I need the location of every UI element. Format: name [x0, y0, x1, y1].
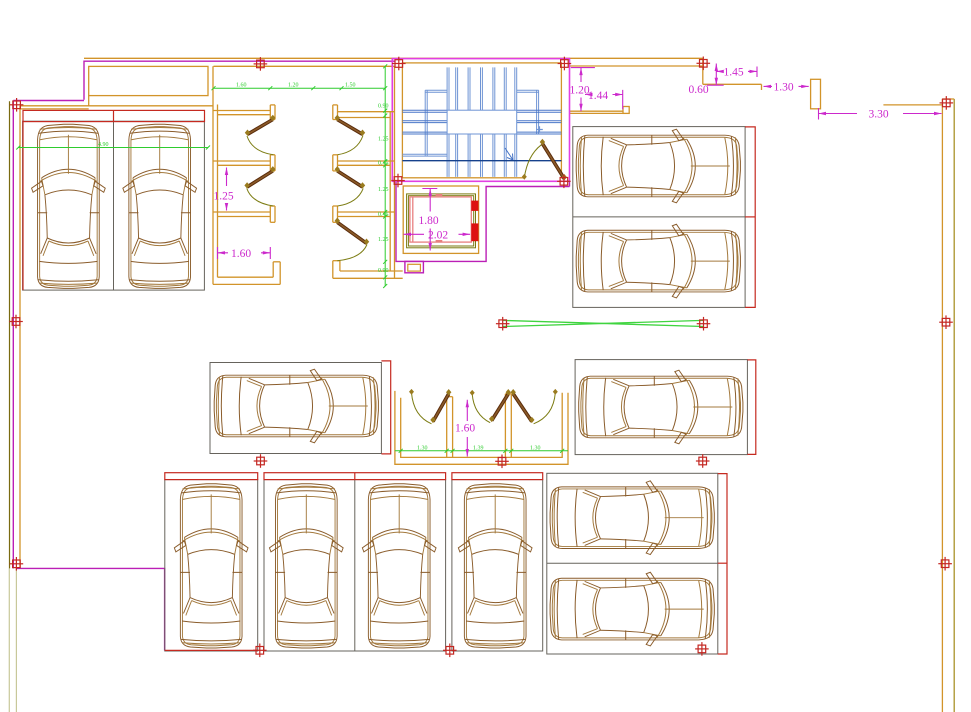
svg-text:0.45: 0.45	[378, 212, 389, 218]
svg-text:1.30: 1.30	[530, 445, 541, 451]
svg-text:1.45: 1.45	[724, 67, 744, 79]
svg-text:1.25: 1.25	[378, 137, 389, 143]
svg-text:1.30: 1.30	[774, 82, 794, 94]
svg-text:1.25: 1.25	[378, 187, 389, 193]
svg-text:1.60: 1.60	[236, 83, 247, 89]
svg-text:0.45: 0.45	[378, 161, 389, 167]
svg-text:1.60: 1.60	[455, 423, 475, 435]
svg-text:0.90: 0.90	[378, 268, 389, 274]
svg-text:0.60: 0.60	[689, 84, 709, 96]
svg-text:1.30: 1.30	[417, 445, 428, 451]
svg-text:1.25: 1.25	[378, 237, 389, 243]
svg-text:3.30: 3.30	[869, 109, 889, 121]
svg-text:0.90: 0.90	[378, 104, 389, 110]
svg-text:1.39: 1.39	[473, 445, 484, 451]
svg-text:4.90: 4.90	[98, 142, 109, 148]
svg-text:1.20: 1.20	[570, 85, 590, 97]
svg-text:1.50: 1.50	[345, 83, 356, 89]
svg-text:1.60: 1.60	[231, 248, 251, 260]
svg-text:2.02: 2.02	[428, 230, 448, 242]
svg-text:1.44: 1.44	[588, 90, 608, 102]
svg-text:1.20: 1.20	[288, 83, 299, 89]
svg-text:1.25: 1.25	[214, 191, 234, 203]
svg-text:1.80: 1.80	[419, 215, 439, 227]
